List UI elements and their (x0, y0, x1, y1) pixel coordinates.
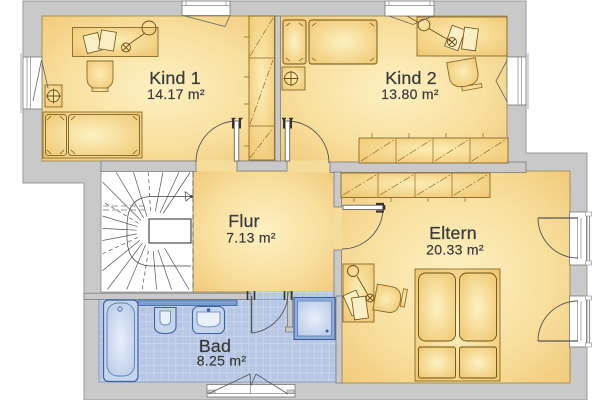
svg-text:Kind 1: Kind 1 (149, 68, 201, 88)
svg-text:Kind 2: Kind 2 (385, 68, 437, 88)
svg-text:20.33 m²: 20.33 m² (426, 242, 484, 258)
svg-text:Flur: Flur (228, 211, 259, 231)
svg-text:13.80 m²: 13.80 m² (381, 86, 439, 102)
svg-text:Eltern: Eltern (429, 223, 477, 243)
svg-text:14.17 m²: 14.17 m² (147, 86, 205, 102)
svg-text:7.13 m²: 7.13 m² (226, 230, 276, 246)
svg-text:8.25 m²: 8.25 m² (197, 353, 247, 369)
